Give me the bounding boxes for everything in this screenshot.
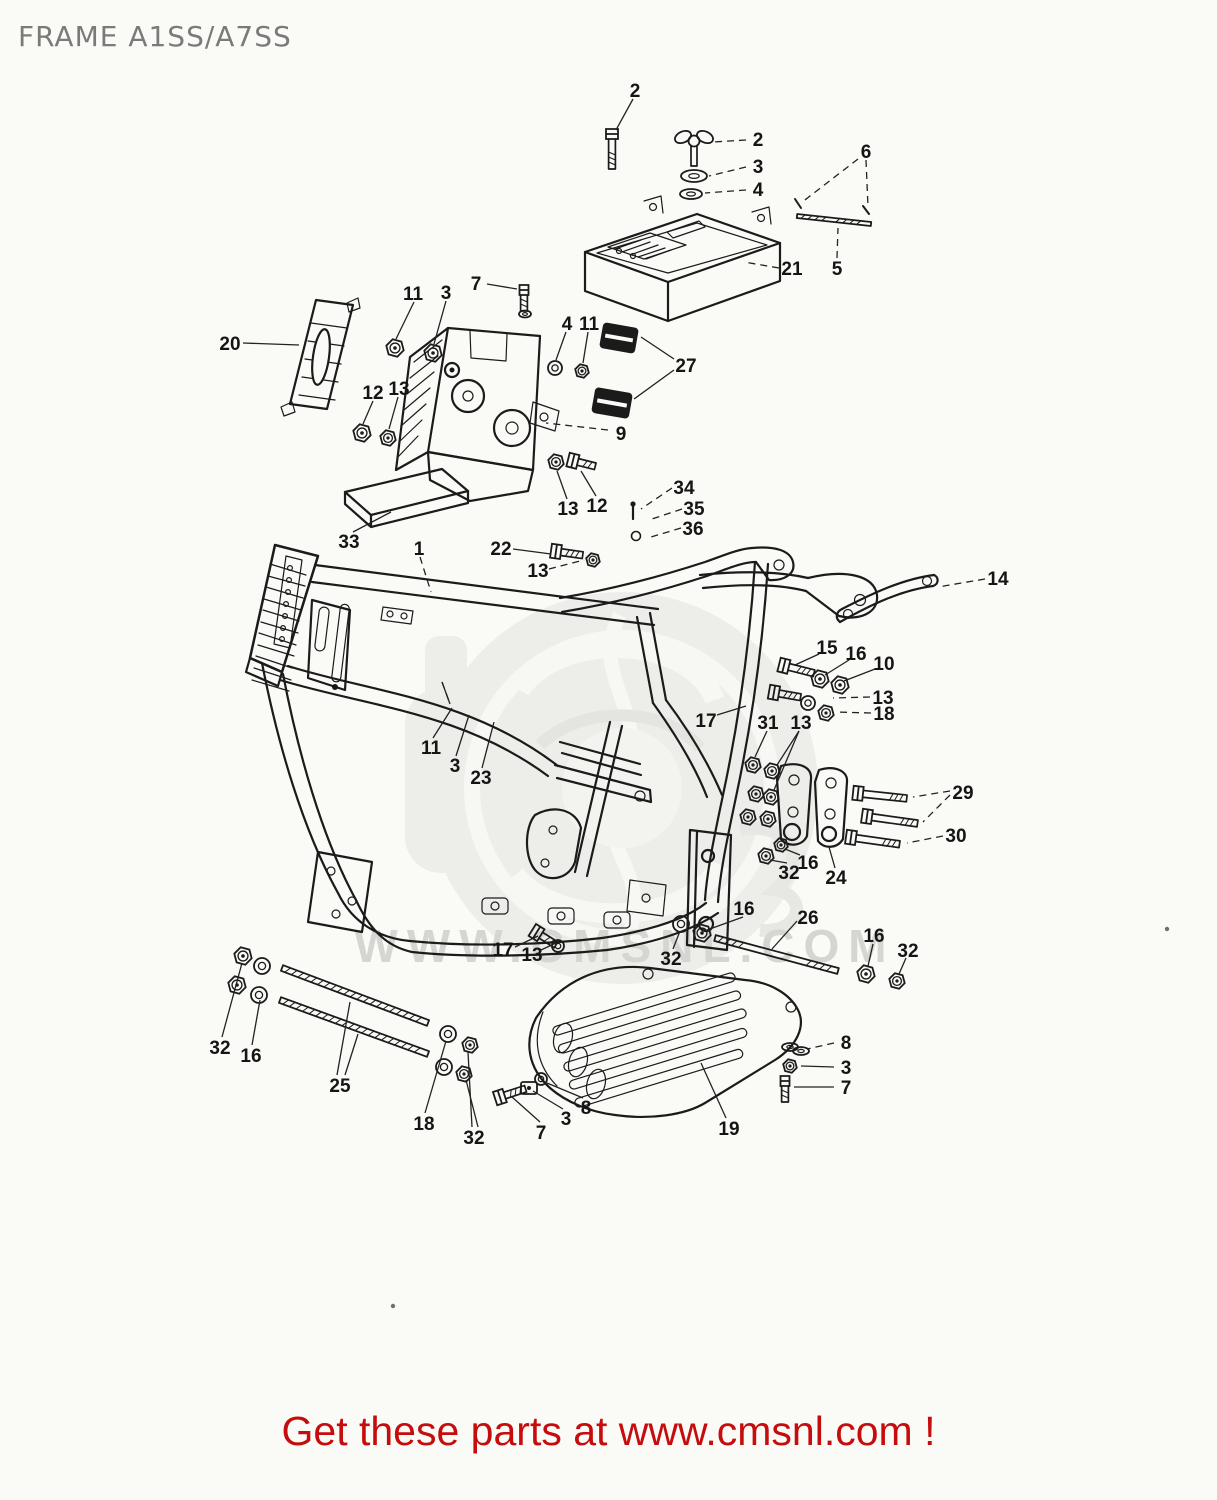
part-callout-3: 3 [709,157,763,178]
hardware-pin [630,501,635,519]
svg-text:31: 31 [757,713,779,734]
hardware-cwasher [548,361,562,375]
svg-text:11: 11 [579,314,600,335]
svg-text:3: 3 [841,1058,852,1079]
hardware-nut [234,947,251,964]
svg-text:10: 10 [873,654,894,675]
part-callout-13: 13 [557,471,579,520]
svg-text:12: 12 [586,496,607,517]
svg-text:3: 3 [561,1109,572,1130]
part-callout-14: 14 [938,569,1009,590]
svg-text:14: 14 [987,569,1009,590]
hardware-bolt [550,544,584,562]
part-callout-2: 2 [713,130,763,151]
part-callout-18: 18 [413,1041,446,1135]
parts-fiche-page: FRAME A1SS/A7SS WWW.CMSNL.COM [0,0,1217,1500]
part-callout-1: 1 [414,539,431,592]
grab-rail-drawing [837,575,938,622]
hardware-cwasher [254,958,270,974]
svg-text:3: 3 [450,756,461,777]
svg-text:13: 13 [557,499,578,520]
parts-diagram: WWW.CMSNL.COM [0,0,1217,1500]
part-callout-29: 29 [913,783,974,822]
svg-text:32: 32 [463,1128,484,1149]
part-callout-24: 24 [825,847,847,889]
svg-text:8: 8 [581,1098,592,1119]
hardware-nut [228,976,245,993]
part-callout-27: 27 [634,337,697,399]
hardware-nut [811,670,828,687]
part-callout-33: 33 [338,512,391,553]
part-callout-15: 15 [795,638,838,665]
svg-text:23: 23 [470,768,491,789]
part-callout-13: 13 [527,560,584,582]
hardware-nut [380,430,395,445]
part-callout-4: 4 [705,180,764,201]
footer-promo: Get these parts at www.cmsnl.com ! [0,1408,1217,1455]
hardware-damper [599,322,639,354]
part-callout-11: 11 [396,284,423,339]
hardware-boltv [606,129,618,169]
hardware-wing [673,128,715,166]
svg-text:13: 13 [527,561,548,582]
part-callout-7: 7 [471,274,517,295]
part-callout-21: 21 [744,259,803,280]
hardware-nut [575,364,589,378]
svg-text:4: 4 [753,180,764,201]
svg-text:8: 8 [841,1033,852,1054]
svg-text:7: 7 [471,274,482,295]
battery-pad-drawing [345,469,468,527]
part-callout-4: 4 [556,314,573,360]
svg-text:32: 32 [209,1038,230,1059]
part-callout-7: 7 [794,1078,851,1099]
hardware-nut [462,1037,477,1052]
part-callout-30: 30 [907,826,967,847]
part-callout-35: 35 [649,499,705,520]
hardware-nut [353,424,370,441]
hardware-rod [797,214,871,226]
part-callout-18: 18 [835,704,895,725]
hardware-washer [680,189,702,199]
svg-text:13: 13 [388,379,409,400]
stray-dots [391,927,1169,1308]
hardware-boltv [781,1076,790,1102]
part-callout-16: 16 [240,1000,261,1067]
svg-text:35: 35 [683,499,705,520]
hardware-washer [681,170,707,182]
svg-text:17: 17 [492,940,513,961]
svg-text:16: 16 [240,1046,261,1067]
hardware-nut [783,1059,797,1073]
part-callout-12: 12 [362,383,383,424]
hardware-bolt [861,809,918,831]
svg-text:20: 20 [219,334,240,355]
part-callout-2: 2 [616,81,640,130]
svg-text:32: 32 [778,863,799,884]
hardware-nut [818,705,833,720]
part-callout-9: 9 [546,423,626,445]
svg-text:9: 9 [616,424,627,445]
svg-text:22: 22 [490,539,511,560]
part-callout-8: 8 [807,1033,851,1054]
part-callout-32: 32 [897,941,918,974]
svg-text:11: 11 [403,284,424,305]
svg-text:29: 29 [952,783,973,804]
svg-text:18: 18 [413,1114,434,1135]
svg-text:33: 33 [338,532,359,553]
svg-text:16: 16 [733,899,754,920]
svg-text:32: 32 [897,941,918,962]
hardware-damper [591,387,633,419]
svg-text:21: 21 [781,259,803,280]
svg-text:18: 18 [873,704,894,725]
svg-text:16: 16 [863,926,884,947]
hardware-tick [795,199,801,208]
part-callout-20: 20 [219,334,299,355]
battery-case-drawing [585,196,780,321]
svg-text:4: 4 [562,314,573,335]
hardware-nut [831,676,848,693]
hardware-boltv [520,285,529,311]
svg-text:25: 25 [329,1076,351,1097]
part-callout-36: 36 [651,519,704,540]
svg-text:11: 11 [421,738,442,759]
hardware-bolt [566,453,597,473]
svg-text:13: 13 [521,945,542,966]
svg-text:24: 24 [825,868,847,889]
part-callout-3: 3 [434,283,451,344]
hardware-nut [386,339,403,356]
part-callout-12: 12 [581,471,608,517]
svg-text:3: 3 [753,157,764,178]
svg-text:2: 2 [630,81,641,102]
hardware-bolt [845,830,900,851]
svg-text:7: 7 [841,1078,852,1099]
svg-text:15: 15 [816,638,838,659]
svg-text:16: 16 [845,644,866,665]
svg-text:2: 2 [753,130,764,151]
svg-text:26: 26 [797,908,818,929]
hardware-cwasher [251,987,267,1003]
svg-text:6: 6 [861,142,872,163]
hardware-nut [889,973,904,988]
hardware-rod [281,965,429,1026]
hardware-cwasher [440,1026,456,1042]
svg-text:27: 27 [675,356,696,377]
svg-text:1: 1 [414,539,425,560]
part-callout-7: 7 [512,1097,546,1144]
part-callout-5: 5 [832,228,843,280]
svg-text:36: 36 [682,519,703,540]
skid-plate-drawing [529,967,801,1117]
svg-text:12: 12 [362,383,383,404]
svg-text:17: 17 [695,711,716,732]
svg-text:5: 5 [832,259,843,280]
svg-text:30: 30 [945,826,966,847]
hardware-washer [793,1047,809,1055]
svg-text:16: 16 [797,853,818,874]
hardware-ring [632,532,641,541]
part-callout-3: 3 [801,1058,851,1079]
svg-text:34: 34 [673,478,695,499]
tool-band-drawing [281,298,360,416]
hardware-bolt [852,786,907,806]
part-callout-22: 22 [490,539,551,560]
svg-text:7: 7 [536,1123,547,1144]
hardware-nut [548,454,563,469]
svg-text:19: 19 [718,1119,739,1140]
svg-text:32: 32 [660,949,681,970]
svg-text:3: 3 [441,283,452,304]
hardware-nut [586,553,600,567]
svg-text:13: 13 [790,713,811,734]
part-callout-11: 11 [579,314,600,363]
hardware-cwasher [801,696,815,710]
part-callout-6: 6 [801,142,871,207]
part-callout-32: 32 [463,1052,484,1149]
hardware-tick [863,206,869,214]
